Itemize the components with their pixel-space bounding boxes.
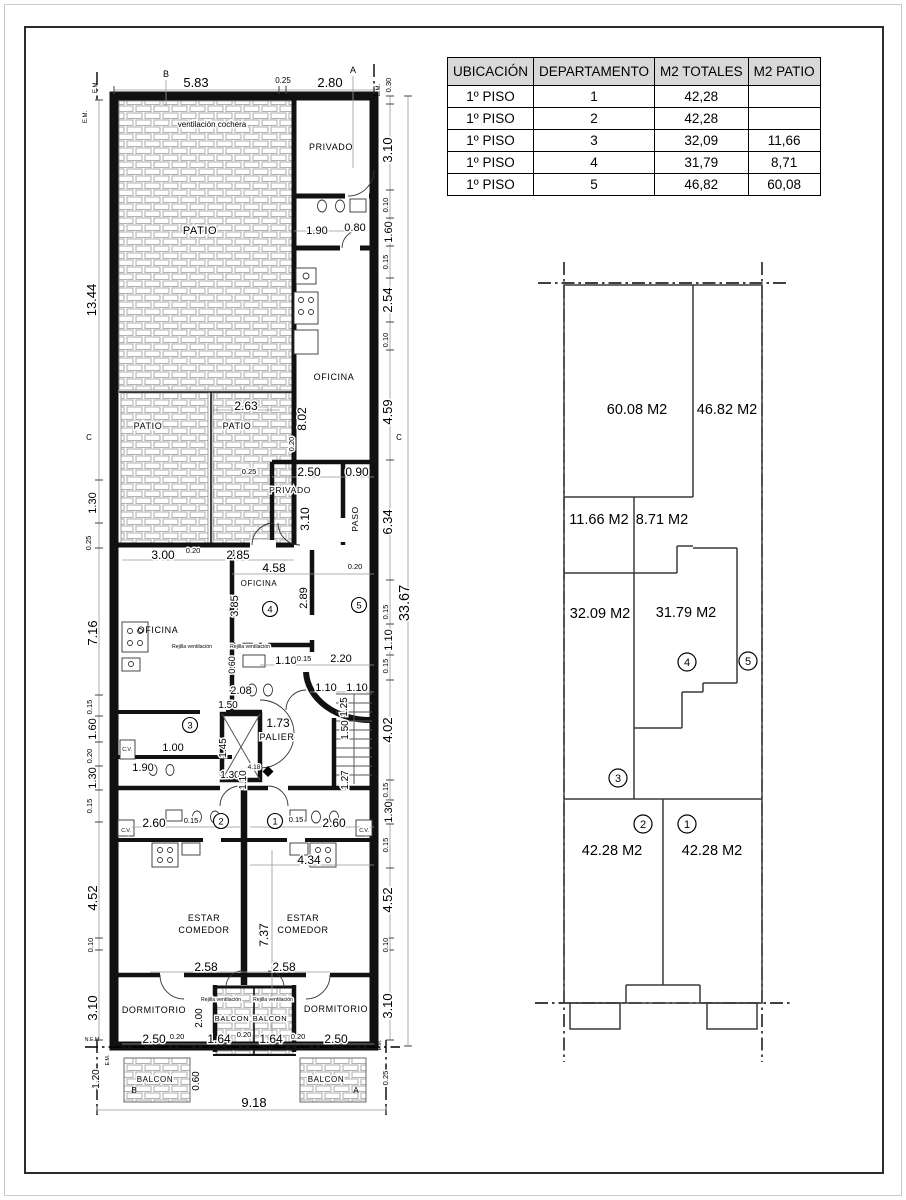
- dim-label: 0.60: [227, 656, 237, 674]
- room-label: ventilación cochera: [178, 120, 247, 129]
- dim-label: 2.80: [317, 75, 342, 90]
- section-marker: C: [396, 433, 402, 442]
- dim-label: 1.10: [275, 655, 296, 667]
- cell-departamento: 4: [534, 152, 655, 174]
- dim-label: 3.10: [298, 507, 312, 531]
- room-label: BALCON: [308, 1075, 345, 1084]
- cell-m2-totales: 32,09: [655, 130, 749, 152]
- dim-label: 1.90: [132, 762, 153, 774]
- dim-label: 0.20: [170, 1032, 185, 1041]
- dim-label: 1.73: [266, 716, 290, 730]
- dim-label: 2.89: [298, 587, 310, 608]
- table-row: 1º PISO 5 46,82 60,08: [448, 174, 821, 196]
- dim-label: 0.80: [344, 222, 365, 234]
- unit-number: 5: [356, 601, 361, 612]
- table-row: 1º PISO 4 31,79 8,71: [448, 152, 821, 174]
- cell-m2-totales: 42,28: [655, 86, 749, 108]
- cv-label: C.V.: [359, 828, 369, 834]
- unit-number: 5: [745, 656, 751, 668]
- dim-label: 0.15: [85, 700, 94, 715]
- unit-number: 2: [218, 817, 223, 828]
- dim-label: 0.25: [381, 1071, 390, 1086]
- dim-label: 1.10: [346, 682, 367, 694]
- vent-grille-label: Rejilla ventilación: [201, 997, 241, 1003]
- dim-label: 0.20: [186, 546, 201, 555]
- dim-label: 2.60: [142, 816, 166, 830]
- cell-departamento: 5: [534, 174, 655, 196]
- dim-label: 8.02: [295, 407, 309, 431]
- unit-number: 3: [615, 773, 621, 785]
- unit-number: 4: [684, 657, 690, 669]
- cell-ubicacion: 1º PISO: [448, 174, 534, 196]
- area-label: 60.08 M2: [607, 402, 667, 418]
- dim-label: 0.20: [291, 1032, 306, 1041]
- col-header-ubicacion: UBICACIÓN: [448, 58, 534, 86]
- dim-label: 0.10: [381, 938, 390, 953]
- dim-label: 4.52: [85, 885, 100, 910]
- dim-label: 0.20: [287, 437, 296, 452]
- dim-label: 1.25: [339, 697, 350, 717]
- dim-label: 4.58: [262, 561, 286, 575]
- dim-label: 2.54: [380, 287, 395, 312]
- cv-label: C.V.: [122, 747, 132, 753]
- cell-m2-patio: 8,71: [748, 152, 820, 174]
- dim-label: 2.60: [322, 816, 346, 830]
- unit-number: 1: [272, 817, 277, 828]
- dim-label: 0.25: [275, 76, 291, 85]
- room-label: OFICINA: [138, 625, 179, 635]
- section-marker: C: [86, 433, 92, 442]
- room-label: COMEDOR: [178, 925, 229, 935]
- dim-label: 33.67: [397, 585, 413, 621]
- dim-label: 0.15: [184, 816, 199, 825]
- area-label: 46.82 M2: [697, 402, 757, 418]
- dim-label: 0.90: [345, 465, 369, 479]
- vent-grille-label: Rejilla ventilación: [230, 644, 270, 650]
- unit-diagram: 60.08 M2 46.82 M2 11.66 M2 8.71 M2 32.09…: [535, 262, 792, 1062]
- cell-ubicacion: 1º PISO: [448, 108, 534, 130]
- table-row: 1º PISO 3 32,09 11,66: [448, 130, 821, 152]
- col-header-m2-totales: M2 TOTALES: [655, 58, 749, 86]
- dim-label: 1.30: [383, 801, 395, 822]
- room-label: BALCON: [253, 1014, 287, 1023]
- dim-label: 1.64: [207, 1032, 231, 1046]
- cell-departamento: 1: [534, 86, 655, 108]
- room-label: DORMITORIO: [122, 1005, 186, 1015]
- room-label: OFICINA: [314, 372, 355, 382]
- section-marker: B: [131, 1086, 136, 1095]
- dim-label: 2.85: [226, 548, 250, 562]
- dim-label: 0.15: [381, 255, 390, 270]
- dim-label: 0.15: [381, 659, 390, 674]
- dim-label: 2.20: [330, 653, 351, 665]
- unit-number: 1: [684, 819, 690, 831]
- dim-label: 4.18: [248, 764, 261, 771]
- room-label: PATIO: [134, 421, 163, 431]
- section-marker: A: [353, 1086, 359, 1095]
- boundary-marker: E.M.: [93, 81, 99, 94]
- boundary-marker: E.M.: [377, 1040, 383, 1051]
- cell-departamento: 3: [534, 130, 655, 152]
- room-label: PALIER: [260, 732, 295, 742]
- dim-label: 1.27: [340, 770, 351, 790]
- dim-label: 0.10: [86, 938, 95, 953]
- dim-label: 0.20: [85, 749, 94, 764]
- room-label: COMEDOR: [277, 925, 328, 935]
- dim-label: 2.58: [194, 960, 218, 974]
- dim-label: 1.64: [259, 1032, 283, 1046]
- boundary-marker: N.E.M: [85, 1037, 99, 1043]
- dim-label: 1.90: [306, 225, 327, 237]
- room-label: PATIO: [223, 421, 252, 431]
- plan-sheet: ventilación cochera PATIO PATIO PATIO PR…: [0, 0, 906, 1200]
- area-label: 42.28 M2: [682, 843, 742, 859]
- cell-m2-totales: 42,28: [655, 108, 749, 130]
- dim-label: 3.10: [85, 995, 100, 1020]
- room-label: BALCON: [137, 1075, 174, 1084]
- vent-grille-label: Rejilla ventilación: [172, 644, 212, 650]
- cell-ubicacion: 1º PISO: [448, 86, 534, 108]
- col-header-m2-patio: M2 PATIO: [748, 58, 820, 86]
- dim-label: 1.30: [87, 492, 99, 513]
- dim-label: 0.30: [384, 78, 393, 93]
- room-label: PASO: [350, 506, 360, 531]
- dim-label: 9.18: [241, 1095, 266, 1110]
- cell-departamento: 2: [534, 108, 655, 130]
- room-label: DORMITORIO: [304, 1004, 368, 1014]
- dim-label: 6.34: [380, 509, 395, 534]
- dim-label: 0.15: [297, 654, 312, 663]
- dim-label: 5.83: [183, 75, 208, 90]
- dim-label: 0.10: [381, 333, 390, 348]
- area-label: 11.66 M2: [569, 512, 628, 528]
- dim-label: 0.15: [381, 838, 390, 853]
- cell-ubicacion: 1º PISO: [448, 152, 534, 174]
- dim-label: 4.52: [380, 887, 395, 912]
- dim-label: 7.16: [85, 620, 100, 645]
- cell-m2-patio: 60,08: [748, 174, 820, 196]
- dim-label: 2.63: [234, 399, 258, 413]
- room-label: ESTAR: [188, 913, 220, 923]
- dim-label: 0.25: [242, 467, 257, 476]
- dim-label: 4.59: [380, 399, 395, 424]
- room-label: PRIVADO: [269, 485, 311, 495]
- dim-label: 1.50: [218, 700, 238, 711]
- dim-label: 3.85: [229, 595, 241, 616]
- cell-m2-patio: [748, 86, 820, 108]
- cv-label: C.V.: [121, 828, 131, 834]
- dim-label: 3.00: [151, 548, 175, 562]
- dim-label: 2.00: [194, 1008, 205, 1028]
- dim-label: 2.58: [272, 960, 296, 974]
- area-label: 42.28 M2: [582, 843, 642, 859]
- cell-ubicacion: 1º PISO: [448, 130, 534, 152]
- dim-label: 0.20: [237, 1030, 252, 1039]
- unit-number: 3: [187, 721, 192, 732]
- room-label: OFICINA: [241, 579, 278, 588]
- dim-label: 1.00: [162, 742, 183, 754]
- dim-label: 0.20: [348, 562, 363, 571]
- area-label: 32.09 M2: [570, 606, 630, 622]
- area-label: 31.79 M2: [656, 605, 716, 621]
- dim-label: 3.10: [380, 993, 395, 1018]
- unit-number: 4: [267, 605, 272, 616]
- dim-label: 4.34: [297, 853, 321, 867]
- dim-label: 1.50: [340, 720, 351, 740]
- dim-label: 0.15: [381, 783, 390, 798]
- area-label: 8.71 M2: [636, 512, 688, 528]
- dim-label: 2.50: [324, 1032, 348, 1046]
- room-label: BALCON: [215, 1014, 249, 1023]
- dim-label: 2.50: [297, 465, 321, 479]
- dim-label: 7.37: [257, 923, 271, 947]
- unit-number: 2: [640, 819, 646, 831]
- boundary-marker: E.M.: [105, 1055, 111, 1066]
- dim-label: 0.15: [289, 815, 304, 824]
- room-label: PRIVADO: [309, 142, 353, 152]
- table-header-row: UBICACIÓN DEPARTAMENTO M2 TOTALES M2 PAT…: [448, 58, 821, 86]
- room-label: PATIO: [183, 225, 217, 237]
- dim-label: 2.50: [142, 1032, 166, 1046]
- dim-label: 0.60: [191, 1071, 202, 1091]
- section-marker: B: [163, 69, 169, 79]
- dim-label: 0.15: [381, 605, 390, 620]
- dim-label: 1.10: [315, 682, 336, 694]
- dim-label: 13.44: [84, 284, 99, 317]
- table-row: 1º PISO 2 42,28: [448, 108, 821, 130]
- dim-label: 4.02: [380, 717, 395, 742]
- col-header-departamento: DEPARTAMENTO: [534, 58, 655, 86]
- dim-label: 0.25: [84, 536, 93, 551]
- dim-label: 3.10: [380, 137, 395, 162]
- dim-label: 1.60: [87, 718, 99, 739]
- left-dimension-chain: 13.44 1.30 0.25 7.16 0.15 1.60 0.20 1.30…: [84, 284, 111, 1089]
- dim-label: 1.10: [383, 629, 395, 650]
- dim-label: 0.15: [85, 799, 94, 814]
- cell-m2-patio: 11,66: [748, 130, 820, 152]
- boundary-marker: E.M.: [83, 111, 89, 124]
- dim-label: 1.10: [238, 770, 249, 790]
- room-label: ESTAR: [287, 913, 319, 923]
- dim-label: 1.20: [91, 1069, 102, 1089]
- areas-table: UBICACIÓN DEPARTAMENTO M2 TOTALES M2 PAT…: [447, 57, 821, 196]
- dim-label: 2.08: [230, 685, 251, 697]
- dim-label: 1.30: [87, 767, 99, 788]
- boundary-marker: E.M.: [376, 84, 382, 97]
- vent-grille-label: Rejilla ventilación: [253, 997, 293, 1003]
- dim-label: 1.45: [218, 738, 229, 758]
- table-row: 1º PISO 1 42,28: [448, 86, 821, 108]
- dim-label: 0.10: [381, 198, 390, 213]
- dim-label: 1.60: [383, 221, 395, 242]
- cell-m2-totales: 46,82: [655, 174, 749, 196]
- cell-m2-patio: [748, 108, 820, 130]
- section-marker: A: [350, 65, 356, 75]
- cell-m2-totales: 31,79: [655, 152, 749, 174]
